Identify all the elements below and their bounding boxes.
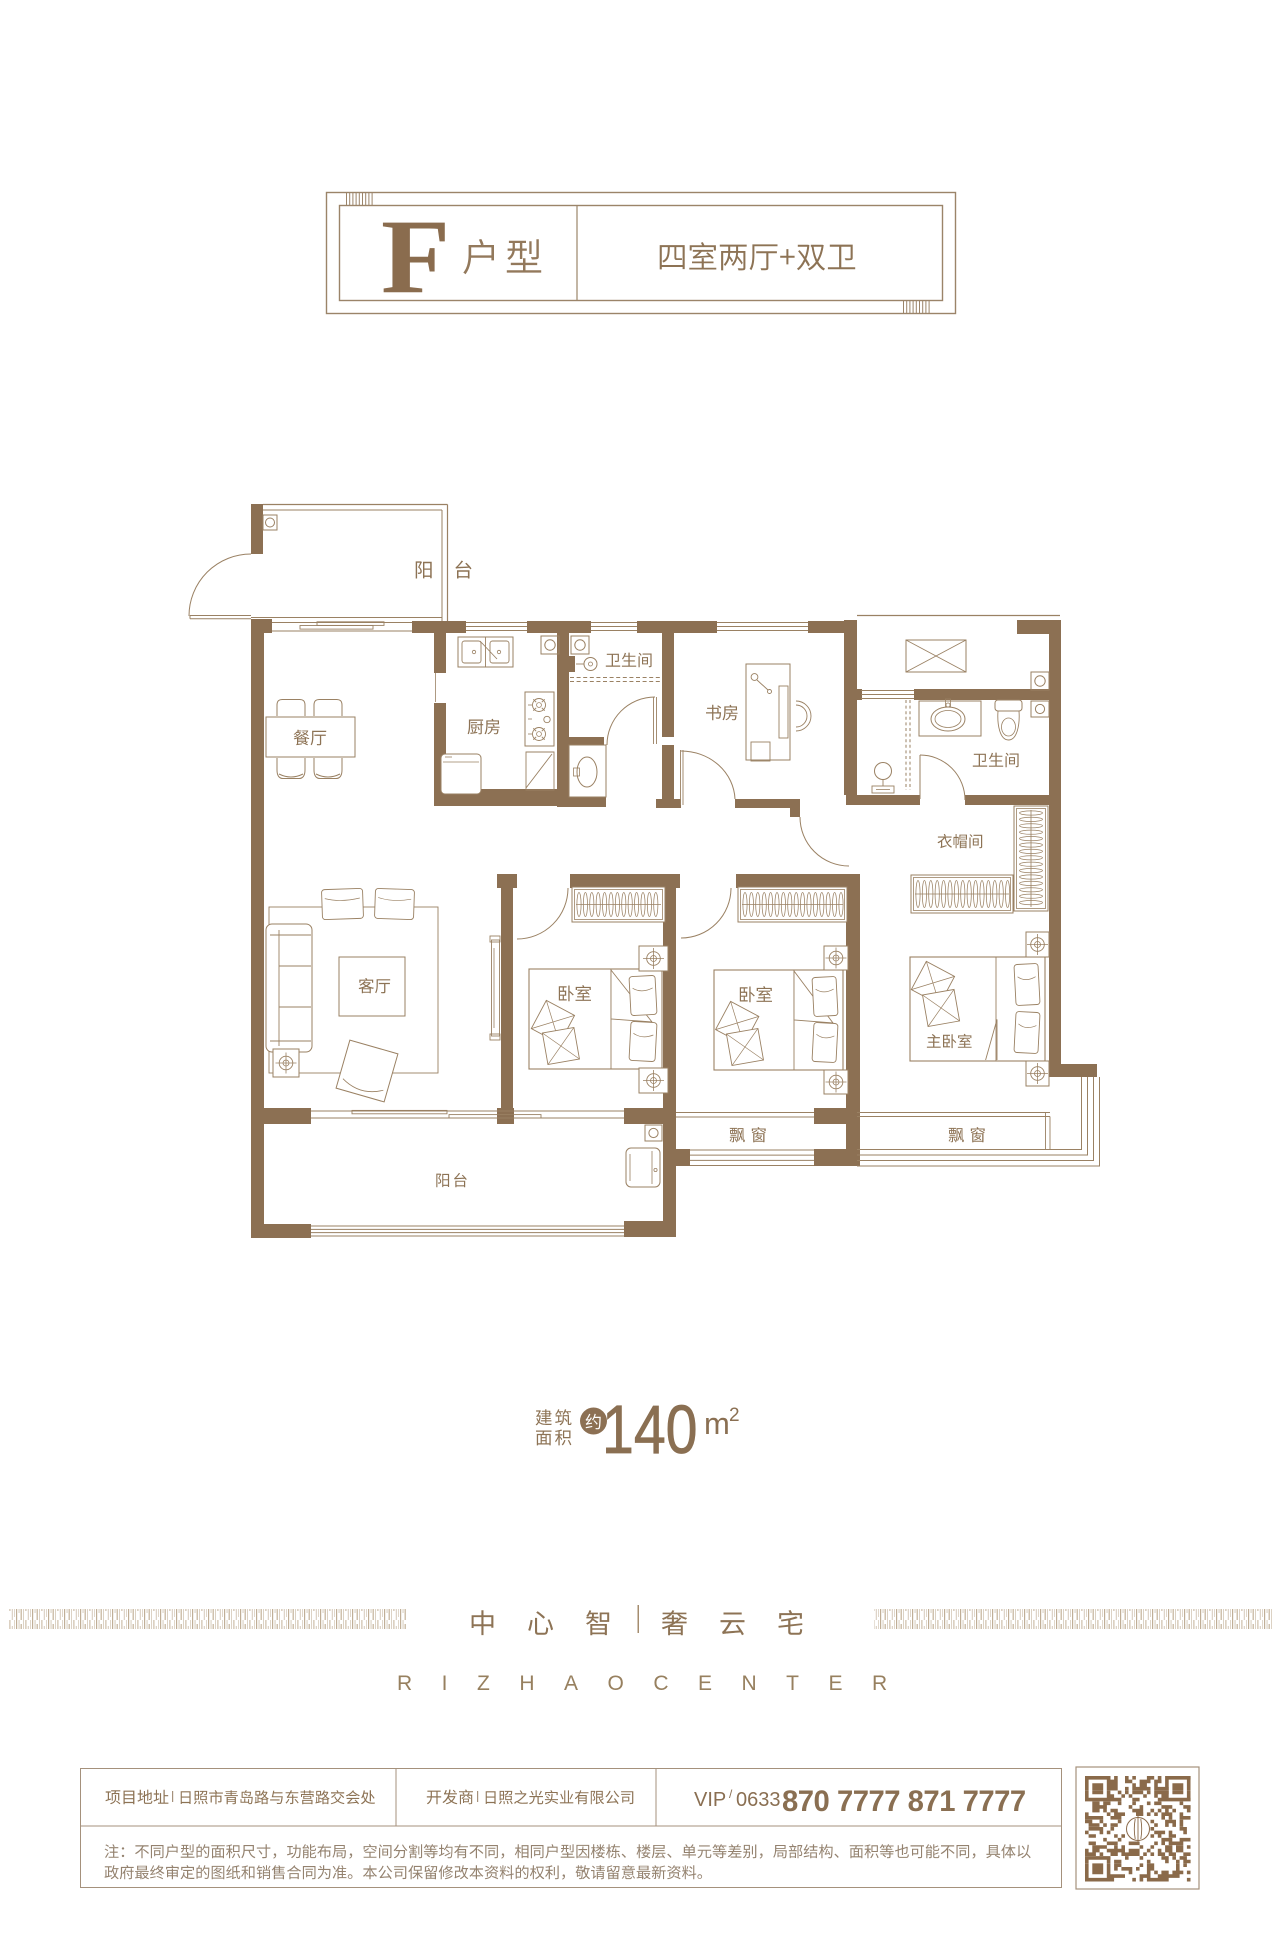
svg-text:F: F bbox=[381, 197, 450, 315]
svg-text:0633: 0633 bbox=[736, 1789, 781, 1811]
svg-text:VIP: VIP bbox=[694, 1789, 726, 1811]
svg-text:m: m bbox=[704, 1406, 730, 1441]
svg-text:870 7777 871 7777: 870 7777 871 7777 bbox=[782, 1785, 1026, 1818]
svg-text:2: 2 bbox=[729, 1405, 740, 1426]
svg-text:140: 140 bbox=[602, 1392, 698, 1468]
svg-text:RIZHAOCENTER: RIZHAOCENTER bbox=[397, 1672, 917, 1695]
svg-text:/: / bbox=[729, 1787, 733, 1801]
